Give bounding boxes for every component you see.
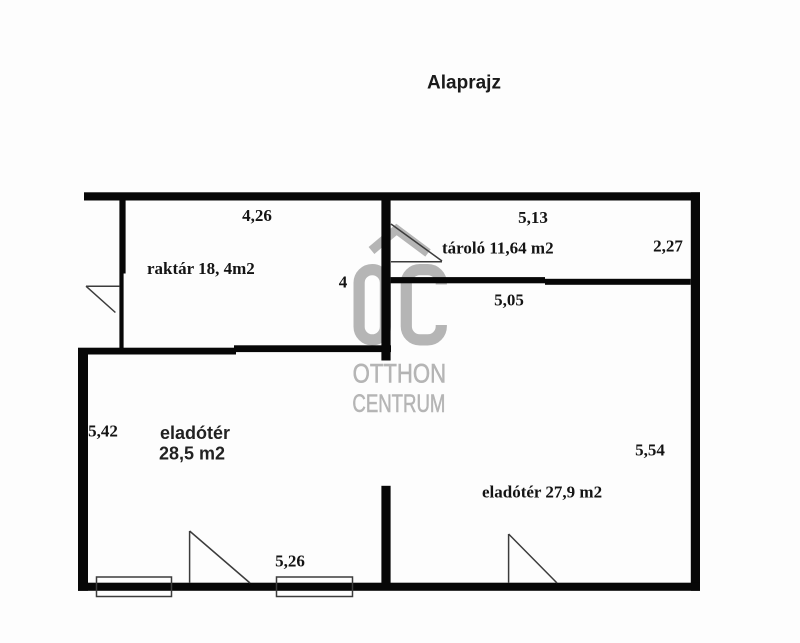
svg-text:CENTRUM: CENTRUM (352, 390, 445, 418)
svg-text:28,5 m2: 28,5 m2 (159, 444, 225, 464)
svg-text:5,05: 5,05 (494, 291, 524, 310)
svg-text:raktár 18, 4m2: raktár 18, 4m2 (147, 259, 255, 278)
svg-text:eladótér 27,9 m2: eladótér 27,9 m2 (482, 483, 602, 502)
svg-text:tároló 11,64 m2: tároló 11,64 m2 (442, 238, 554, 257)
svg-text:eladótér: eladótér (160, 423, 230, 443)
svg-text:Alaprajz: Alaprajz (427, 73, 501, 94)
svg-text:5,42: 5,42 (88, 422, 118, 441)
svg-text:5,54: 5,54 (635, 441, 665, 460)
svg-text:4: 4 (339, 273, 348, 292)
svg-text:2,27: 2,27 (653, 237, 683, 256)
svg-text:4,26: 4,26 (242, 206, 272, 225)
svg-text:OTTHON: OTTHON (353, 359, 447, 389)
svg-text:5,26: 5,26 (275, 552, 305, 571)
svg-text:5,13: 5,13 (518, 208, 548, 227)
